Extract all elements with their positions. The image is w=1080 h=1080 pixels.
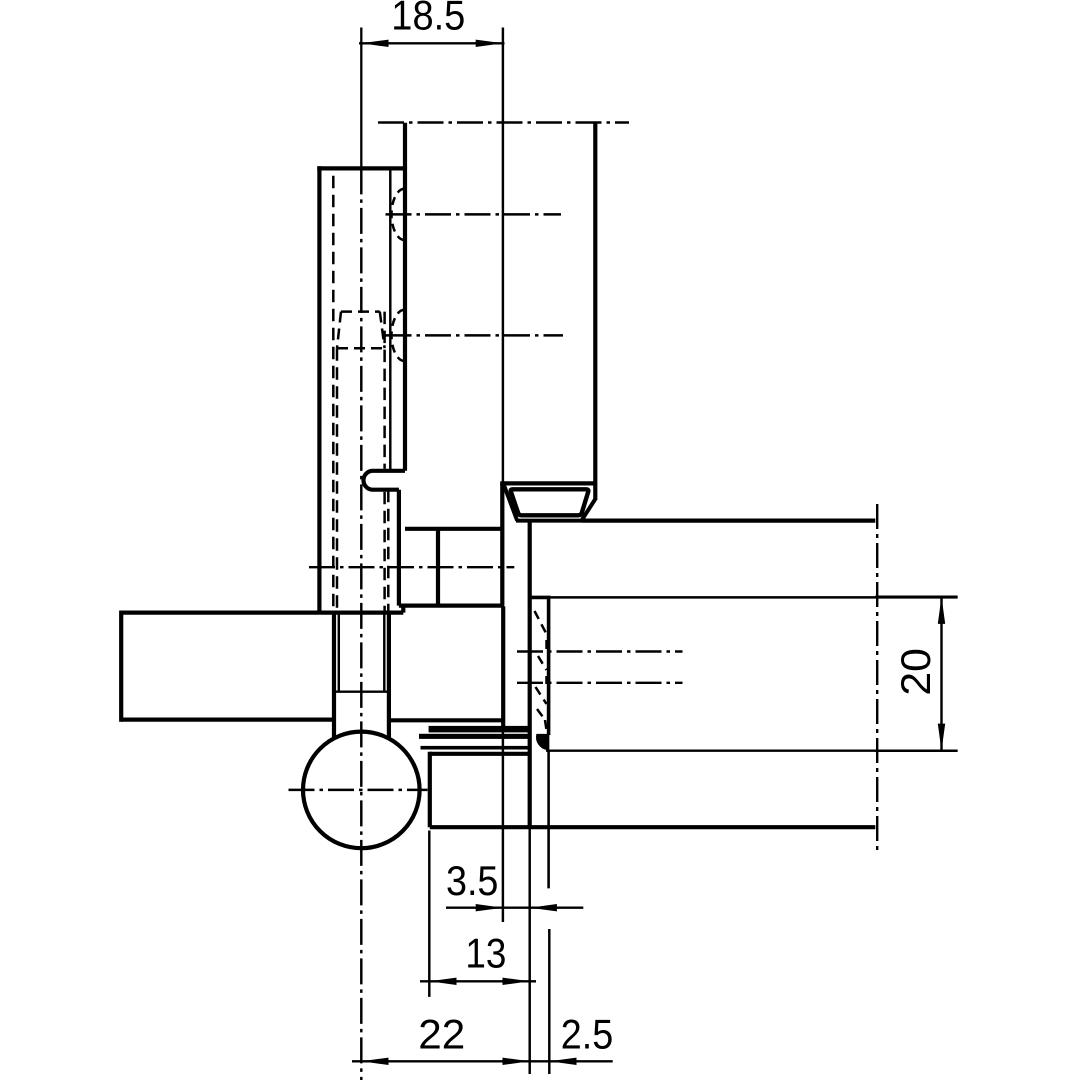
svg-text:22: 22 — [418, 1011, 465, 1058]
svg-text:3.5: 3.5 — [446, 857, 499, 904]
svg-text:20: 20 — [892, 648, 939, 696]
svg-text:2.5: 2.5 — [561, 1011, 614, 1058]
svg-text:18.5: 18.5 — [391, 0, 465, 39]
svg-text:13: 13 — [465, 929, 506, 976]
